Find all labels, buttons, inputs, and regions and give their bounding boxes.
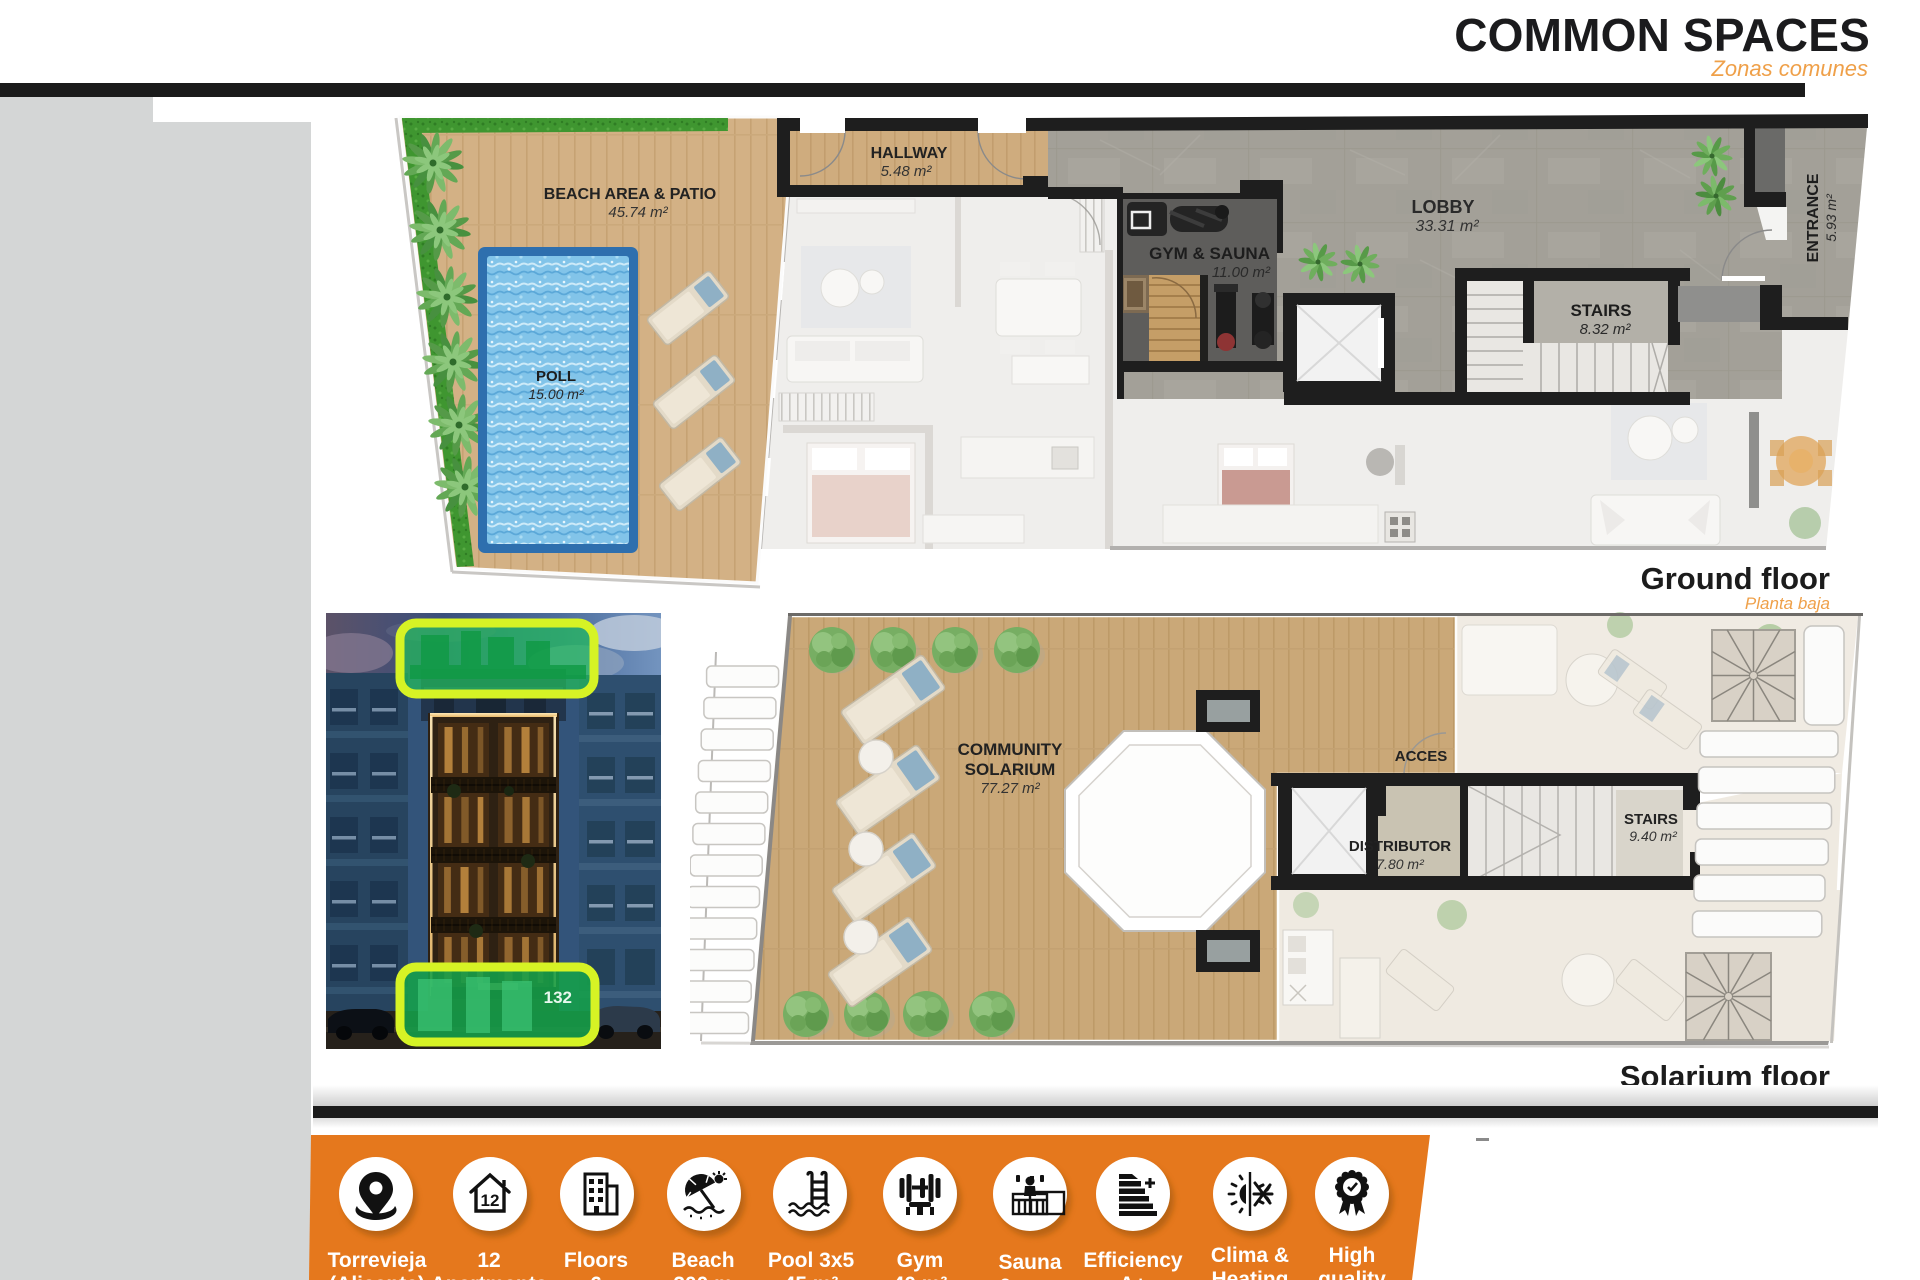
svg-text:77.27 m²: 77.27 m² bbox=[980, 780, 1040, 797]
svg-text:9.40 m²: 9.40 m² bbox=[1629, 828, 1678, 844]
svg-text:12: 12 bbox=[481, 1191, 500, 1210]
svg-text:LOBBY: LOBBY bbox=[1412, 197, 1475, 217]
svg-text:8.32 m²: 8.32 m² bbox=[1580, 321, 1632, 338]
svg-text:Gym: Gym bbox=[897, 1249, 944, 1272]
svg-text:200 m: 200 m bbox=[673, 1273, 733, 1280]
svg-text:quality: quality bbox=[1318, 1268, 1386, 1280]
svg-text:Clima &: Clima & bbox=[1211, 1244, 1289, 1267]
svg-text:ENTRANCE: ENTRANCE bbox=[1805, 173, 1822, 262]
svg-text:Torrevieja: Torrevieja bbox=[328, 1249, 427, 1272]
svg-text:6 pers: 6 pers bbox=[999, 1275, 1061, 1280]
svg-text:STAIRS: STAIRS bbox=[1624, 811, 1678, 828]
svg-text:COMMUNITY: COMMUNITY bbox=[958, 740, 1063, 759]
svg-text:POLL: POLL bbox=[536, 368, 576, 385]
svg-text:11.00 m²: 11.00 m² bbox=[1212, 264, 1271, 281]
svg-text:SOLARIUM: SOLARIUM bbox=[965, 760, 1056, 779]
svg-text:5.93 m²: 5.93 m² bbox=[1823, 193, 1839, 242]
svg-text:Pool 3x5: Pool 3x5 bbox=[768, 1249, 855, 1272]
svg-text:45.74 m²: 45.74 m² bbox=[608, 204, 668, 221]
svg-text:STAIRS: STAIRS bbox=[1570, 301, 1631, 320]
svg-text:BEACH AREA & PATIO: BEACH AREA & PATIO bbox=[544, 186, 716, 203]
svg-text:132: 132 bbox=[544, 988, 572, 1007]
svg-text:A+: A+ bbox=[1119, 1273, 1146, 1280]
svg-text:15.00 m²: 15.00 m² bbox=[528, 386, 585, 402]
svg-text:7.80 m²: 7.80 m² bbox=[1376, 856, 1425, 872]
svg-text:Floors: Floors bbox=[564, 1249, 628, 1272]
svg-text:Heating: Heating bbox=[1211, 1268, 1288, 1280]
svg-text:45 m²: 45 m² bbox=[784, 1273, 839, 1280]
svg-text:(Alicante): (Alicante) bbox=[329, 1273, 425, 1280]
svg-text:5.48 m²: 5.48 m² bbox=[881, 163, 933, 180]
svg-text:HALLWAY: HALLWAY bbox=[871, 145, 948, 162]
svg-text:High: High bbox=[1329, 1244, 1376, 1267]
svg-text:Sauna: Sauna bbox=[998, 1251, 1061, 1274]
svg-text:DISTRIBUTOR: DISTRIBUTOR bbox=[1349, 838, 1451, 855]
svg-text:Beach: Beach bbox=[671, 1249, 734, 1272]
svg-text:40 m²: 40 m² bbox=[893, 1273, 948, 1280]
svg-text:ACCES: ACCES bbox=[1395, 748, 1448, 765]
svg-text:GYM & SAUNA: GYM & SAUNA bbox=[1149, 244, 1270, 263]
svg-text:Apartments: Apartments bbox=[431, 1273, 548, 1280]
svg-text:6: 6 bbox=[590, 1273, 602, 1280]
svg-text:Efficiency: Efficiency bbox=[1083, 1249, 1183, 1272]
svg-text:33.31 m²: 33.31 m² bbox=[1415, 218, 1479, 235]
svg-text:12: 12 bbox=[477, 1249, 500, 1272]
